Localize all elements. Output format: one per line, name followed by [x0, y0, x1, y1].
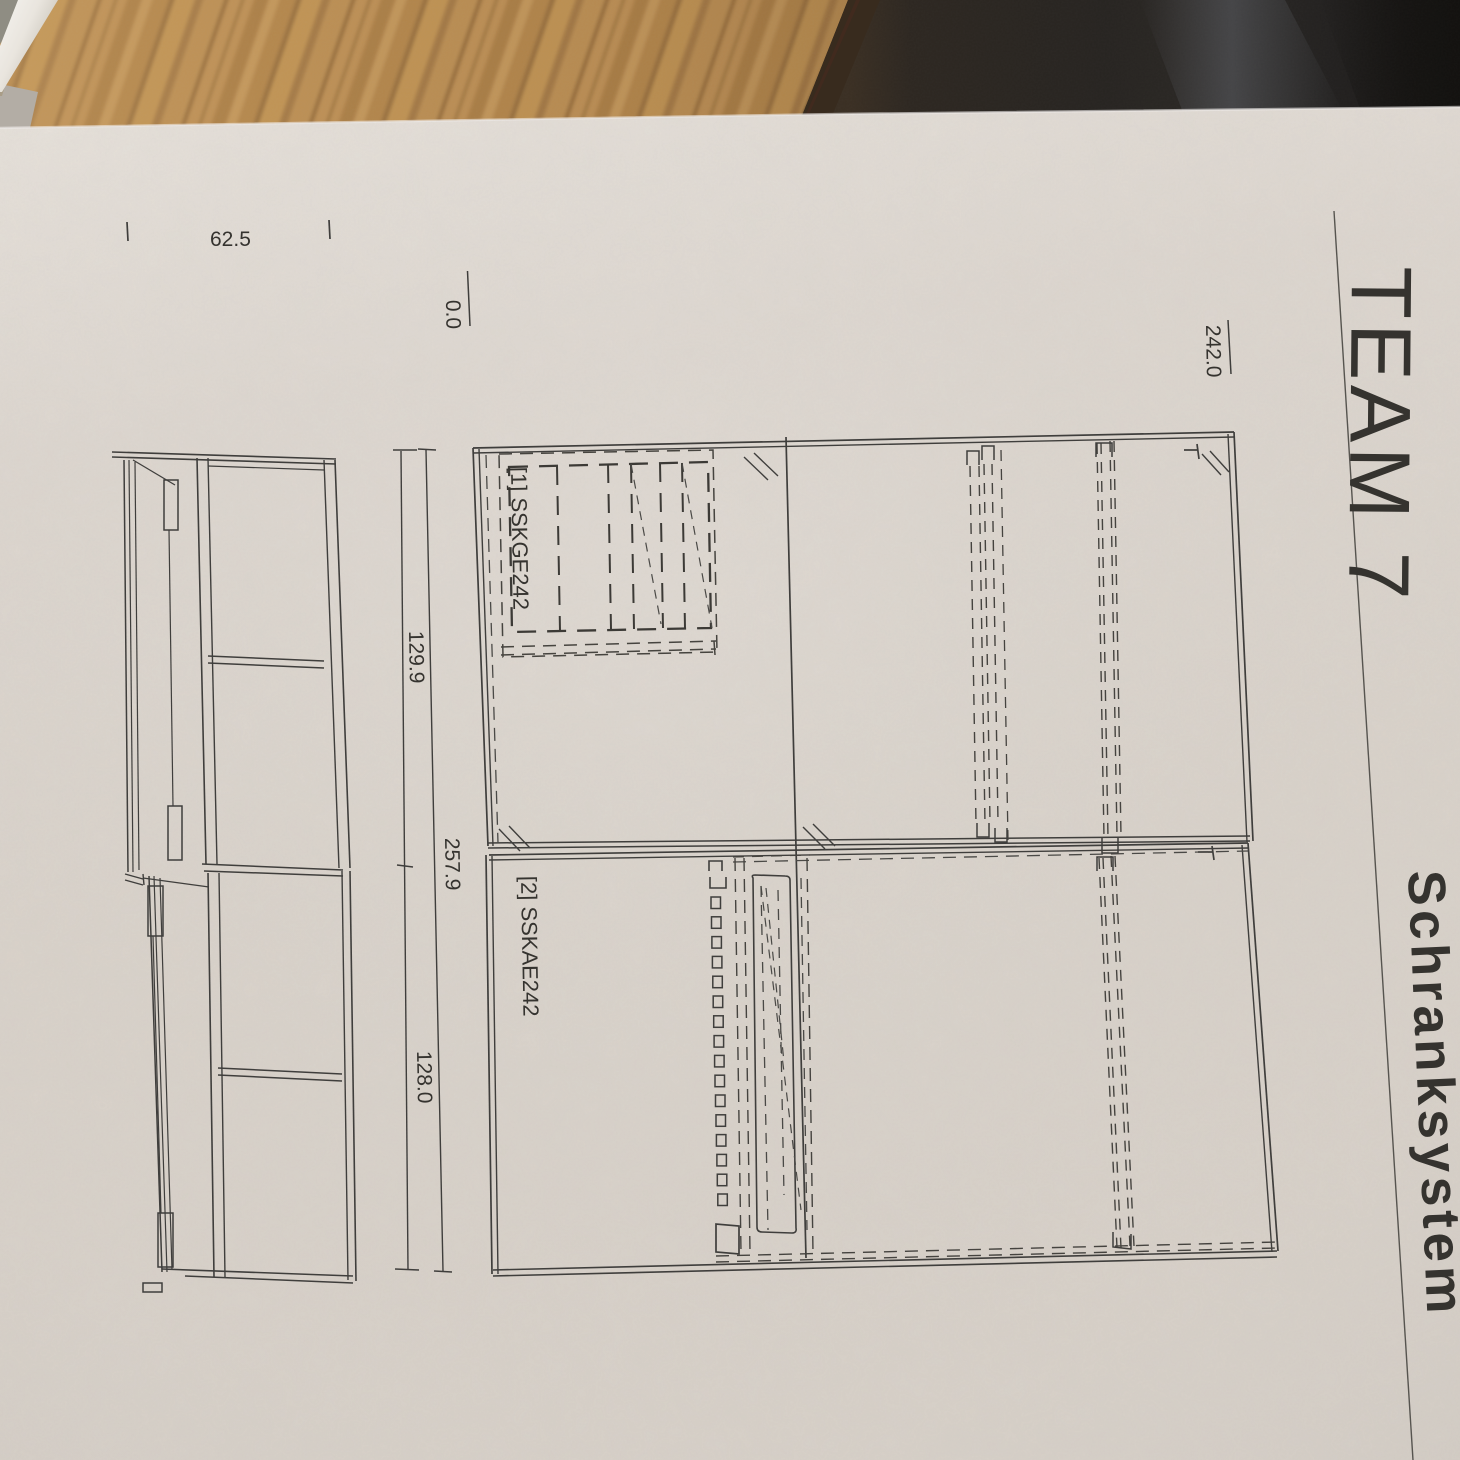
svg-text:[2] SSKAE242: [2] SSKAE242: [516, 876, 543, 1017]
svg-text:62.5: 62.5: [210, 228, 251, 251]
svg-text:129.9: 129.9: [404, 631, 428, 684]
svg-text:TEAM 7: TEAM 7: [1330, 266, 1429, 604]
svg-text:128.0: 128.0: [412, 1051, 436, 1104]
svg-text:0.0: 0.0: [441, 300, 465, 330]
svg-text:257.9: 257.9: [440, 838, 464, 891]
svg-text:[1] SSKGE242: [1] SSKGE242: [506, 467, 533, 611]
svg-text:242.0: 242.0: [1201, 325, 1225, 378]
